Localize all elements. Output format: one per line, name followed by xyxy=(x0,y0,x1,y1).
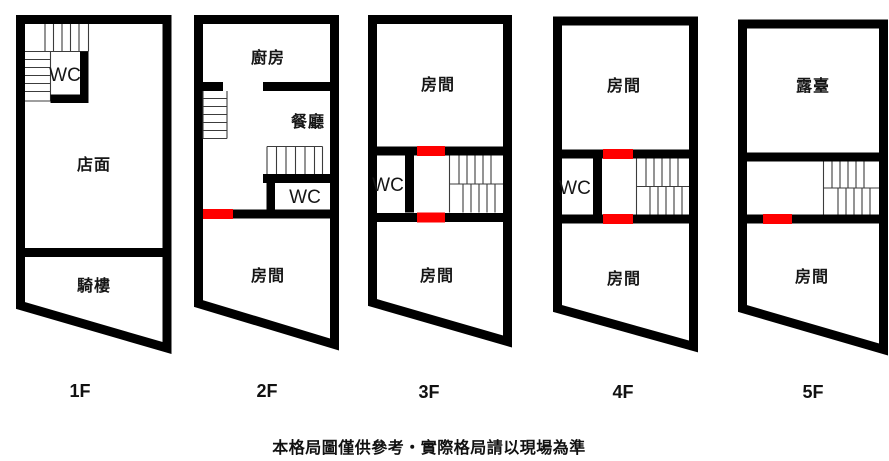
outer-wall-1f xyxy=(21,20,168,349)
floor-plan-diagram: WC 店面 騎樓 1F 廚房 餐廳 WC 房間 2F 房間 WC 房間 3F xyxy=(0,0,889,461)
door-marker-top-4f xyxy=(603,149,633,159)
door-marker-2f xyxy=(203,209,233,219)
room-label-wc-1f: WC xyxy=(49,65,81,86)
floor-label-3f: 3F xyxy=(418,382,439,402)
room-label-wc-3f: WC xyxy=(372,175,404,196)
wc-wall-bottom-1f xyxy=(51,95,89,104)
floor-plan-page: WC 店面 騎樓 1F 廚房 餐廳 WC 房間 2F 房間 WC 房間 3F xyxy=(0,0,889,461)
room-label-kitchen: 廚房 xyxy=(251,48,285,67)
floor-plan-1f: WC 店面 騎樓 1F xyxy=(17,20,170,402)
floor-plan-4f: 房間 WC 房間 4F xyxy=(554,21,697,402)
floor-label-2f: 2F xyxy=(256,381,277,401)
door-marker-top-3f xyxy=(417,146,445,156)
floor-plan-5f: 露臺 房間 5F xyxy=(739,24,887,402)
room-label-dining: 餐廳 xyxy=(290,112,325,131)
room-label-room-top-4f: 房間 xyxy=(607,76,641,95)
room-label-room-bottom-3f: 房間 xyxy=(420,266,454,285)
floor-plan-3f: 房間 WC 房間 3F xyxy=(369,20,511,403)
wc-wall-right-4f xyxy=(593,159,602,216)
wc-wall-left-2f xyxy=(267,183,276,211)
room-label-room-top-3f: 房間 xyxy=(421,75,455,94)
door-marker-bottom-3f xyxy=(417,213,445,223)
room-label-room-bottom-5f: 房間 xyxy=(795,267,829,286)
room-label-wc-2f: WC xyxy=(289,187,321,208)
outer-wall-5f xyxy=(743,24,884,350)
room-label-storefront: 店面 xyxy=(77,155,111,174)
room-label-terrace: 露臺 xyxy=(796,76,830,95)
door-marker-5f xyxy=(763,214,792,224)
disclaimer-text: 本格局圖僅供參考‧實際格局請以現場為準 xyxy=(272,438,586,457)
floor-label-1f: 1F xyxy=(69,381,90,401)
floor-plan-2f: 廚房 餐廳 WC 房間 2F xyxy=(195,20,337,402)
floor-label-5f: 5F xyxy=(802,382,823,402)
room-label-arcade: 騎樓 xyxy=(77,276,111,295)
door-marker-bottom-4f xyxy=(603,214,633,224)
room-label-room-2f: 房間 xyxy=(251,266,285,285)
wc-wall-right-3f xyxy=(405,156,414,213)
room-label-wc-4f: WC xyxy=(559,178,591,199)
room-label-room-bottom-4f: 房間 xyxy=(607,269,641,288)
floor-label-4f: 4F xyxy=(612,382,633,402)
